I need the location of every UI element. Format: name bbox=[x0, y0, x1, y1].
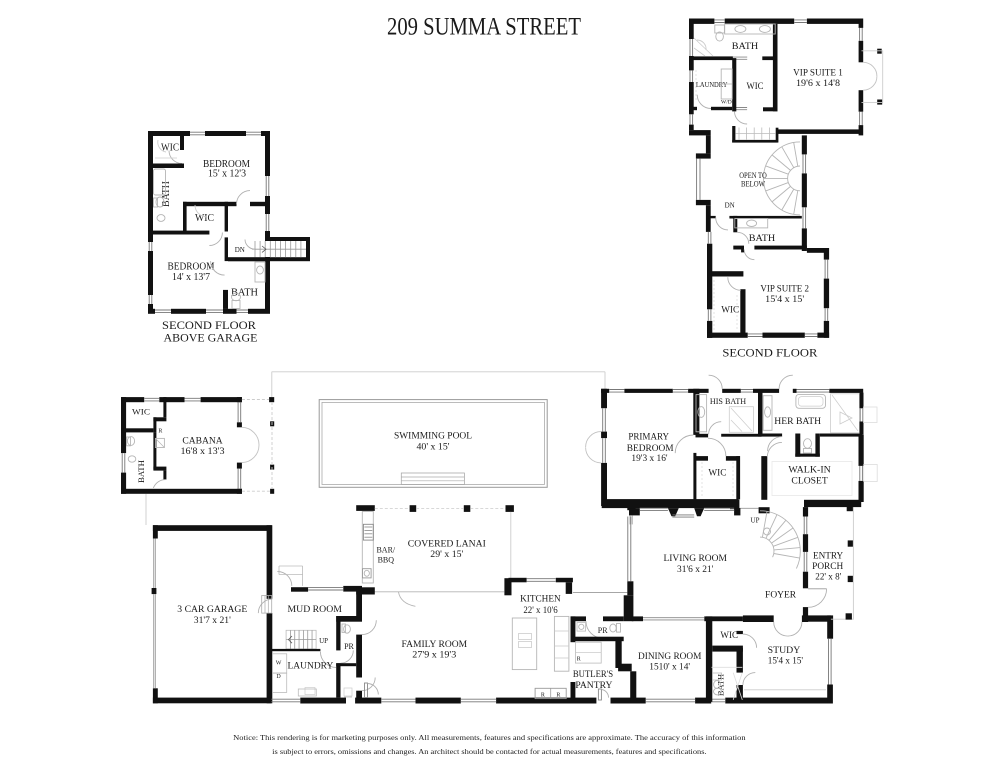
svg-text:LIVING ROOM: LIVING ROOM bbox=[663, 554, 727, 564]
svg-text:PRIMARY: PRIMARY bbox=[628, 433, 669, 443]
svg-text:209 SUMMA STREET: 209 SUMMA STREET bbox=[387, 13, 581, 40]
svg-text:BATH: BATH bbox=[136, 460, 146, 483]
svg-text:WIC: WIC bbox=[721, 305, 739, 315]
svg-text:16'8 x 13'3: 16'8 x 13'3 bbox=[181, 446, 226, 456]
svg-text:40' x 15': 40' x 15' bbox=[417, 442, 450, 452]
svg-text:WIC: WIC bbox=[708, 469, 726, 479]
svg-text:22' x 10'6: 22' x 10'6 bbox=[523, 605, 558, 615]
svg-text:MUD ROOM: MUD ROOM bbox=[288, 605, 343, 615]
svg-text:KITCHEN: KITCHEN bbox=[520, 595, 561, 605]
svg-text:is subject to errors, omission: is subject to errors, omissions and chan… bbox=[272, 747, 707, 756]
svg-text:FOYER: FOYER bbox=[765, 591, 797, 601]
svg-text:VIP SUITE 1: VIP SUITE 1 bbox=[793, 69, 843, 79]
svg-text:FAMILY ROOM: FAMILY ROOM bbox=[402, 640, 468, 650]
svg-text:CLOSET: CLOSET bbox=[791, 476, 827, 486]
svg-text:15'4 x 15': 15'4 x 15' bbox=[768, 656, 804, 666]
svg-text:PR: PR bbox=[344, 642, 354, 651]
svg-text:BAR/: BAR/ bbox=[376, 546, 395, 555]
svg-text:WIC: WIC bbox=[195, 213, 214, 224]
svg-text:BBQ: BBQ bbox=[378, 556, 395, 565]
svg-text:WIC: WIC bbox=[747, 82, 764, 92]
svg-text:ENTRY: ENTRY bbox=[813, 552, 843, 562]
svg-text:R: R bbox=[577, 657, 581, 663]
svg-text:W/D: W/D bbox=[721, 100, 732, 106]
svg-text:UP: UP bbox=[751, 517, 760, 525]
svg-text:WALK-IN: WALK-IN bbox=[788, 466, 831, 476]
svg-text:WIC: WIC bbox=[161, 143, 179, 154]
svg-text:BATH: BATH bbox=[732, 42, 759, 52]
svg-text:31'6 x 21': 31'6 x 21' bbox=[677, 564, 714, 574]
svg-text:COVERED LANAI: COVERED LANAI bbox=[408, 540, 486, 550]
svg-text:15'4 x 15': 15'4 x 15' bbox=[765, 294, 804, 304]
svg-text:R: R bbox=[541, 693, 545, 699]
svg-text:29' x 15': 29' x 15' bbox=[430, 549, 463, 559]
svg-text:DINING ROOM: DINING ROOM bbox=[638, 652, 702, 662]
svg-text:BATH: BATH bbox=[161, 181, 172, 207]
svg-text:HER BATH: HER BATH bbox=[774, 417, 821, 427]
svg-text:WIC: WIC bbox=[720, 630, 738, 640]
svg-text:HIS BATH: HIS BATH bbox=[710, 396, 746, 406]
svg-text:BELOW: BELOW bbox=[741, 179, 765, 189]
svg-text:CABANA: CABANA bbox=[182, 437, 222, 447]
svg-text:1510' x 14': 1510' x 14' bbox=[649, 661, 690, 671]
svg-text:31'7 x 21': 31'7 x 21' bbox=[194, 615, 231, 625]
svg-text:BUTLER'S: BUTLER'S bbox=[573, 670, 613, 680]
svg-text:SECOND FLOOR: SECOND FLOOR bbox=[722, 346, 817, 360]
svg-text:27'9 x 19'3: 27'9 x 19'3 bbox=[412, 650, 457, 660]
svg-text:W: W bbox=[276, 660, 282, 666]
svg-text:STUDY: STUDY bbox=[768, 646, 801, 656]
svg-text:WIC: WIC bbox=[132, 407, 150, 417]
svg-text:VIP SUITE 2: VIP SUITE 2 bbox=[760, 284, 809, 294]
svg-text:ABOVE GARAGE: ABOVE GARAGE bbox=[164, 331, 258, 345]
svg-text:UP: UP bbox=[319, 637, 328, 645]
svg-text:BEDROOM: BEDROOM bbox=[168, 262, 216, 273]
svg-text:R: R bbox=[158, 428, 162, 434]
svg-text:22' x 8': 22' x 8' bbox=[815, 571, 841, 581]
svg-text:D: D bbox=[276, 674, 281, 680]
svg-text:15' x 12'3: 15' x 12'3 bbox=[208, 169, 246, 180]
svg-text:R: R bbox=[556, 693, 560, 699]
svg-text:14' x 13'7: 14' x 13'7 bbox=[172, 272, 210, 283]
svg-text:DN: DN bbox=[725, 201, 735, 209]
svg-text:19'3 x 16': 19'3 x 16' bbox=[631, 453, 668, 463]
svg-text:BATH: BATH bbox=[749, 234, 776, 244]
svg-text:LAUNDRY: LAUNDRY bbox=[288, 662, 334, 672]
svg-text:19'6 x 14'8: 19'6 x 14'8 bbox=[796, 78, 841, 88]
svg-text:PANTRY: PANTRY bbox=[575, 681, 612, 691]
svg-text:SWIMMING POOL: SWIMMING POOL bbox=[394, 432, 472, 442]
svg-text:DN: DN bbox=[235, 246, 245, 254]
svg-text:PR: PR bbox=[598, 626, 608, 635]
svg-text:Notice: This rendering is for: Notice: This rendering is for marketing … bbox=[233, 733, 746, 742]
svg-text:3 CAR GARAGE: 3 CAR GARAGE bbox=[177, 605, 247, 615]
